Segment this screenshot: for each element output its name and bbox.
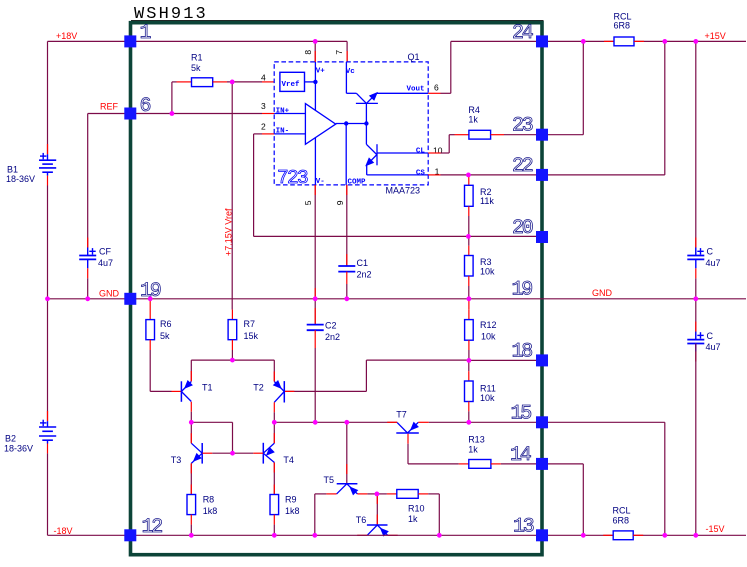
svg-text:14: 14 bbox=[510, 444, 531, 467]
svg-text:1k8: 1k8 bbox=[203, 506, 218, 516]
svg-text:15k: 15k bbox=[244, 331, 259, 341]
svg-text:1k: 1k bbox=[468, 445, 478, 455]
svg-text:1k: 1k bbox=[408, 514, 418, 524]
svg-text:Q1: Q1 bbox=[408, 52, 420, 62]
svg-text:4u7: 4u7 bbox=[706, 258, 721, 268]
svg-text:T1: T1 bbox=[202, 383, 213, 393]
svg-text:18-36V: 18-36V bbox=[6, 174, 35, 184]
svg-text:3: 3 bbox=[261, 101, 266, 111]
svg-text:-15V: -15V bbox=[706, 524, 725, 534]
svg-text:6: 6 bbox=[434, 83, 439, 93]
svg-text:R13: R13 bbox=[468, 435, 485, 445]
svg-text:22: 22 bbox=[512, 155, 533, 178]
svg-text:7: 7 bbox=[334, 50, 344, 55]
svg-text:C: C bbox=[707, 247, 714, 257]
svg-text:R4: R4 bbox=[468, 105, 480, 115]
svg-text:R7: R7 bbox=[244, 319, 256, 329]
svg-text:T6: T6 bbox=[356, 515, 367, 525]
svg-text:19: 19 bbox=[512, 279, 533, 302]
svg-text:4u7: 4u7 bbox=[98, 258, 113, 268]
svg-text:T7: T7 bbox=[396, 410, 407, 420]
svg-text:Vout: Vout bbox=[407, 86, 425, 94]
svg-text:R12: R12 bbox=[480, 320, 497, 330]
svg-text:T3: T3 bbox=[171, 455, 182, 465]
svg-text:CS: CS bbox=[416, 169, 426, 177]
svg-text:C2: C2 bbox=[325, 320, 337, 330]
svg-text:C1: C1 bbox=[357, 258, 369, 268]
svg-text:12: 12 bbox=[142, 516, 163, 539]
svg-text:B2: B2 bbox=[5, 434, 16, 444]
svg-text:15: 15 bbox=[511, 403, 532, 426]
svg-text:T2: T2 bbox=[253, 383, 264, 393]
svg-text:-18V: -18V bbox=[54, 526, 73, 536]
svg-text:1k8: 1k8 bbox=[285, 506, 300, 516]
svg-text:11k: 11k bbox=[480, 196, 494, 206]
svg-text:R6: R6 bbox=[160, 319, 172, 329]
svg-text:C: C bbox=[707, 331, 714, 341]
svg-text:R3: R3 bbox=[480, 257, 492, 267]
svg-text:T4: T4 bbox=[283, 455, 294, 465]
svg-text:V-: V- bbox=[316, 178, 325, 186]
svg-text:2n2: 2n2 bbox=[325, 332, 340, 342]
svg-text:R8: R8 bbox=[203, 495, 215, 505]
svg-text:5: 5 bbox=[303, 200, 313, 205]
svg-text:+15V: +15V bbox=[705, 31, 726, 41]
svg-text:723: 723 bbox=[277, 167, 308, 189]
svg-text:6R8: 6R8 bbox=[613, 516, 630, 526]
svg-text:10k: 10k bbox=[481, 332, 496, 342]
svg-text:4u7: 4u7 bbox=[706, 342, 721, 352]
svg-text:CF: CF bbox=[99, 247, 111, 257]
svg-text:2n2: 2n2 bbox=[357, 270, 372, 280]
svg-text:R9: R9 bbox=[285, 495, 297, 505]
svg-text:Vref: Vref bbox=[282, 81, 301, 89]
svg-text:RCL: RCL bbox=[613, 506, 631, 516]
svg-text:8: 8 bbox=[303, 50, 313, 55]
svg-text:6: 6 bbox=[140, 95, 151, 118]
svg-text:Vc: Vc bbox=[346, 68, 356, 76]
svg-text:10k: 10k bbox=[480, 393, 495, 403]
svg-text:13: 13 bbox=[513, 516, 534, 539]
svg-text:10k: 10k bbox=[480, 267, 495, 277]
svg-text:5k: 5k bbox=[191, 63, 201, 73]
svg-text:5k: 5k bbox=[160, 331, 170, 341]
svg-text:MAA723: MAA723 bbox=[386, 186, 421, 196]
svg-text:4: 4 bbox=[261, 72, 266, 82]
svg-text:10: 10 bbox=[433, 145, 443, 155]
svg-text:20: 20 bbox=[512, 217, 533, 240]
svg-text:R11: R11 bbox=[480, 383, 496, 393]
svg-text:1k: 1k bbox=[468, 115, 478, 125]
svg-text:T5: T5 bbox=[324, 475, 335, 485]
svg-text:CL: CL bbox=[416, 147, 426, 155]
svg-text:6R8: 6R8 bbox=[614, 21, 631, 31]
svg-text:+18V: +18V bbox=[56, 31, 77, 41]
svg-text:18: 18 bbox=[512, 341, 533, 364]
svg-text:23: 23 bbox=[512, 115, 533, 138]
svg-text:+7.15V Vref: +7.15V Vref bbox=[224, 208, 234, 256]
svg-text:COMP: COMP bbox=[348, 178, 367, 186]
svg-text:GND: GND bbox=[592, 288, 613, 298]
svg-text:IN-: IN- bbox=[276, 128, 290, 136]
svg-text:IN+: IN+ bbox=[276, 108, 290, 116]
svg-text:R10: R10 bbox=[408, 504, 425, 514]
svg-text:18-36V: 18-36V bbox=[4, 444, 33, 454]
svg-text:V+: V+ bbox=[316, 67, 326, 75]
svg-text:2: 2 bbox=[261, 122, 266, 132]
svg-text:R1: R1 bbox=[191, 52, 203, 62]
svg-text:REF: REF bbox=[100, 101, 119, 111]
svg-text:9: 9 bbox=[335, 200, 345, 205]
svg-text:GND: GND bbox=[99, 289, 120, 299]
svg-text:24: 24 bbox=[512, 22, 533, 45]
